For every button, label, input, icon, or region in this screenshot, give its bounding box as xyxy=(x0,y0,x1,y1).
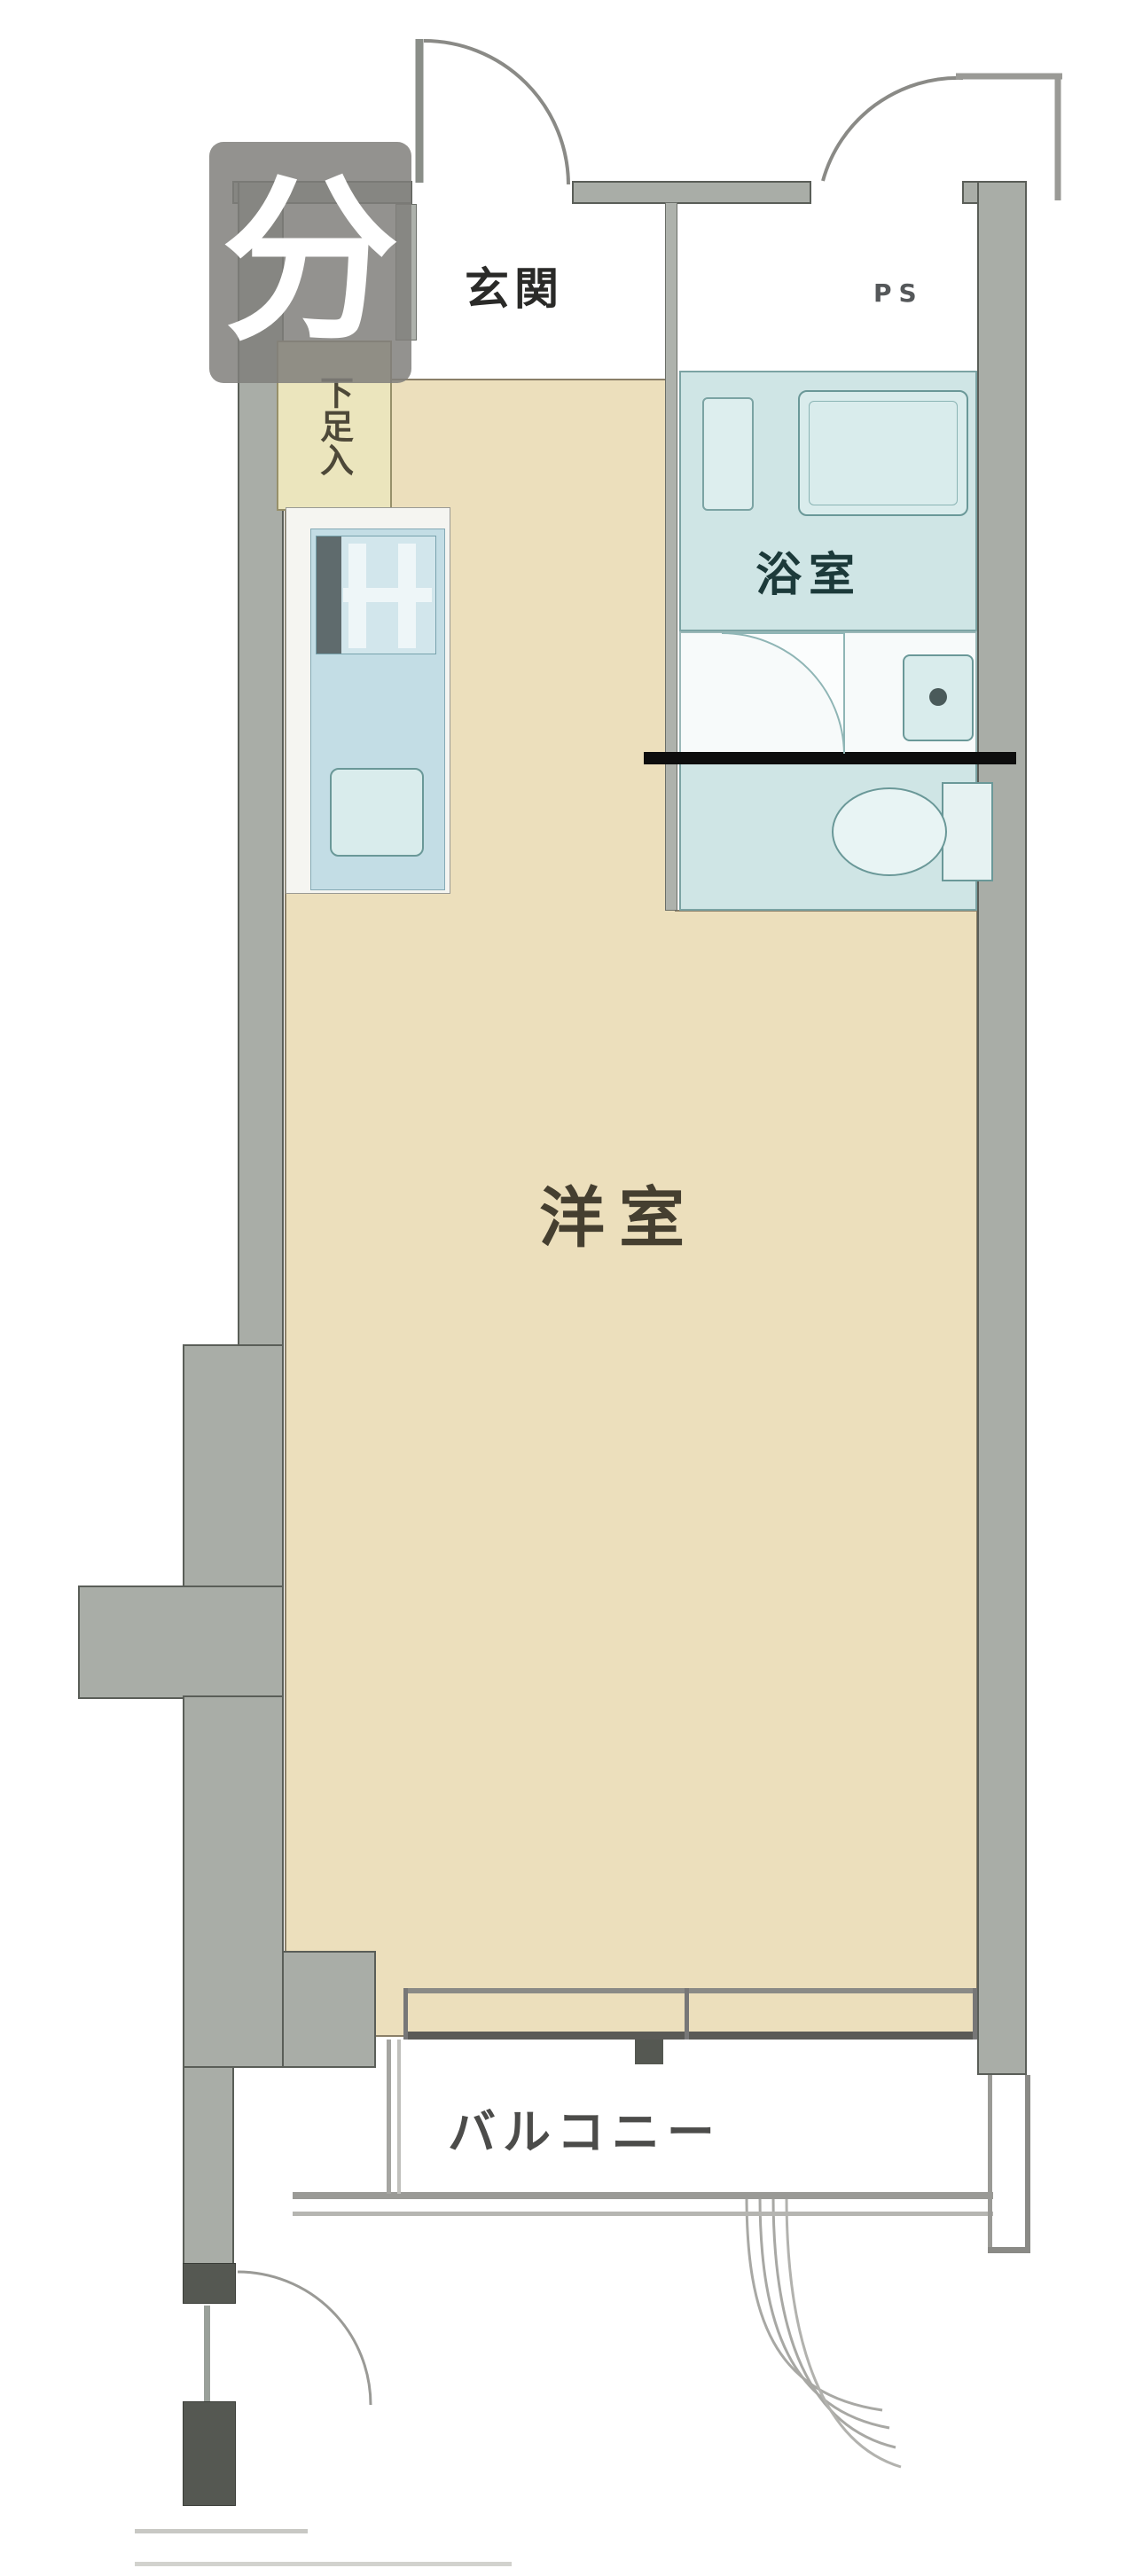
vanity-faucet xyxy=(929,688,947,706)
wall-left-lower xyxy=(183,1695,284,2068)
balcony-edge-line xyxy=(293,2212,993,2216)
floorplan-canvas: 玄関 下足入 浴室 PS 洋室 バルコニー xyxy=(0,0,1135,2576)
pipe-space-label: PS xyxy=(873,278,924,308)
wall-top-mid xyxy=(572,181,811,204)
toilet-bowl xyxy=(832,787,947,876)
wall-right xyxy=(977,181,1027,2075)
ground-line xyxy=(135,2562,512,2566)
washing-machine-pan xyxy=(702,397,754,511)
kitchen-sink xyxy=(330,768,424,857)
partition-door-leaf xyxy=(204,2306,210,2401)
window-tick xyxy=(403,1988,408,2040)
toilet-tank xyxy=(942,782,993,881)
balcony-partition xyxy=(397,2040,401,2194)
wall-hall-divider xyxy=(665,202,677,911)
window-tick xyxy=(685,1988,689,2040)
wall-left-stub-upper xyxy=(183,2263,236,2304)
balcony-partition xyxy=(387,2040,391,2194)
western-room-label: 洋室 xyxy=(539,1165,699,1260)
wall-left-column xyxy=(183,2066,234,2267)
shoe-cupboard-label: 下足入 xyxy=(310,375,359,476)
vanity-sink xyxy=(903,654,974,741)
balcony-label: バルコニー xyxy=(448,2093,722,2163)
kitchen-stove xyxy=(316,536,436,654)
kitchen-stove-panel xyxy=(317,536,341,654)
wall-left-mid xyxy=(183,1344,284,1589)
bathroom-label: 浴室 xyxy=(755,537,862,604)
bathtub xyxy=(798,390,968,516)
balcony-partition-door-arc xyxy=(238,2272,371,2405)
window-latch xyxy=(635,2040,663,2064)
divider-line xyxy=(644,752,1016,764)
watermark: 分 xyxy=(209,142,411,383)
wall-left-protrusion xyxy=(78,1586,284,1699)
balcony-rail-cap xyxy=(988,2247,1030,2253)
ground-line xyxy=(135,2529,308,2533)
wall-corner-block xyxy=(282,1951,376,2068)
window-sill-outer xyxy=(403,2032,977,2040)
balcony-rail xyxy=(988,2075,992,2252)
balcony-rail xyxy=(1025,2075,1030,2252)
wall-left-stub-lower xyxy=(183,2401,236,2506)
window-tick xyxy=(973,1988,977,2040)
watermark-glyph: 分 xyxy=(222,174,399,351)
bathtub-inner xyxy=(809,401,958,505)
window-sill-inner xyxy=(403,1988,977,1993)
entrance-label: 玄関 xyxy=(465,254,564,317)
kitchen-sink-divider xyxy=(343,588,432,602)
